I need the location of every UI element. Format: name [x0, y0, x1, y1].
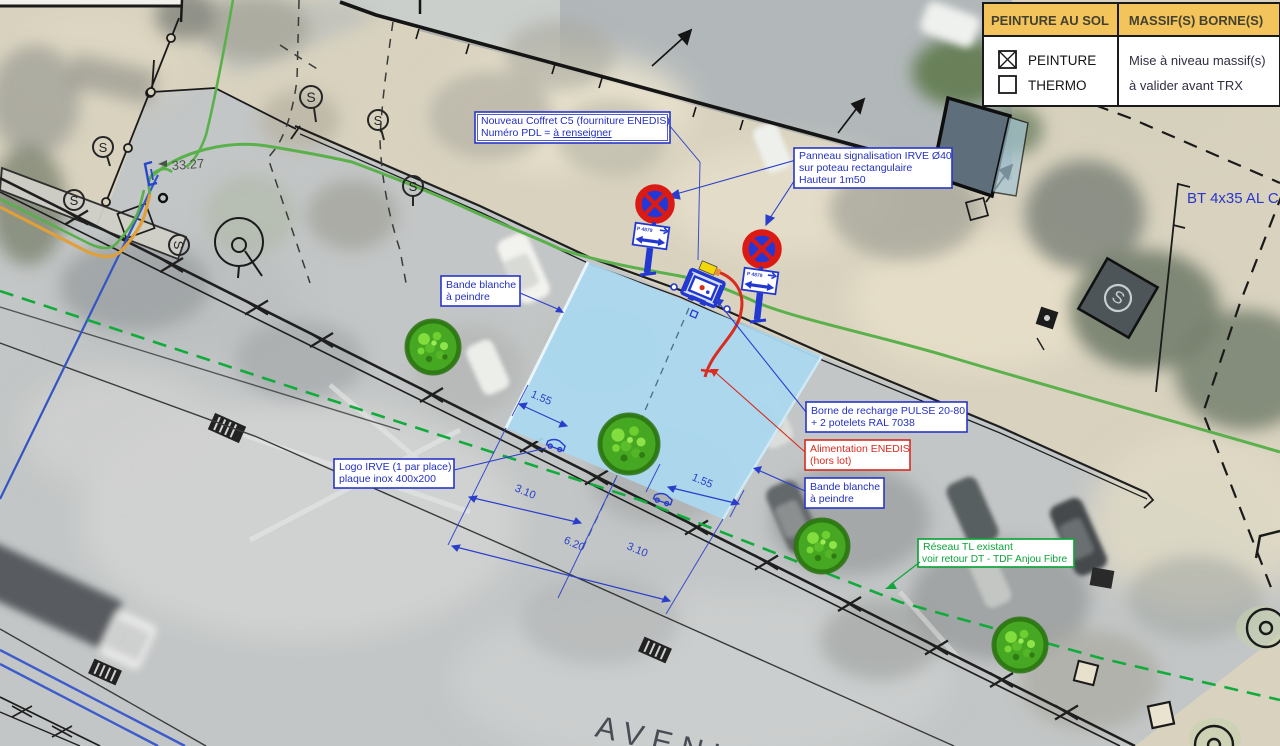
svg-text:Logo IRVE (1 par place): Logo IRVE (1 par place): [339, 461, 451, 473]
svg-text:33.27: 33.27: [171, 156, 205, 173]
svg-text:PEINTURE AU SOL: PEINTURE AU SOL: [991, 13, 1109, 28]
svg-text:BT 4x35 AL C: BT 4x35 AL C: [1187, 190, 1279, 207]
svg-text:Bande blanche: Bande blanche: [810, 481, 880, 493]
svg-text:Bande blanche: Bande blanche: [446, 279, 516, 291]
svg-text:Alimentation ENEDIS: Alimentation ENEDIS: [810, 443, 910, 455]
svg-text:(hors lot): (hors lot): [810, 455, 851, 467]
svg-text:THERMO: THERMO: [1028, 78, 1087, 93]
svg-text:à peindre: à peindre: [810, 493, 854, 505]
svg-text:MASSIF(S) BORNE(S): MASSIF(S) BORNE(S): [1129, 13, 1263, 28]
svg-text:+ 2 potelets RAL 7038: + 2 potelets RAL 7038: [811, 417, 915, 429]
svg-text:Borne de recharge PULSE 20-80: Borne de recharge PULSE 20-80: [811, 405, 965, 417]
svg-text:Réseau TL existant: Réseau TL existant: [923, 541, 1013, 553]
svg-text:Hauteur 1m50: Hauteur 1m50: [799, 174, 866, 186]
svg-text:sur poteau rectangulaire: sur poteau rectangulaire: [799, 162, 912, 174]
svg-text:voir retour DT - TDF Anjou Fib: voir retour DT - TDF Anjou Fibre: [922, 554, 1067, 565]
svg-text:S: S: [409, 179, 418, 194]
svg-text:S: S: [306, 89, 315, 105]
svg-text:PEINTURE: PEINTURE: [1028, 53, 1096, 68]
svg-text:S: S: [99, 140, 108, 155]
svg-text:Mise à niveau massif(s): Mise à niveau massif(s): [1129, 53, 1266, 68]
svg-text:Nouveau Coffret C5 (fourniture: Nouveau Coffret C5 (fourniture ENEDIS): [481, 115, 670, 127]
svg-text:plaque inox 400x200: plaque inox 400x200: [339, 473, 436, 485]
svg-text:Panneau signalisation IRVE Ø40: Panneau signalisation IRVE Ø40: [799, 150, 952, 162]
svg-text:S: S: [171, 241, 186, 250]
svg-text:à peindre: à peindre: [446, 291, 490, 303]
svg-text:Numéro PDL = à renseigner: Numéro PDL = à renseigner: [481, 127, 612, 139]
svg-text:à valider avant TRX: à valider avant TRX: [1129, 78, 1243, 93]
svg-text:S: S: [70, 193, 79, 208]
svg-text:S: S: [374, 113, 383, 128]
